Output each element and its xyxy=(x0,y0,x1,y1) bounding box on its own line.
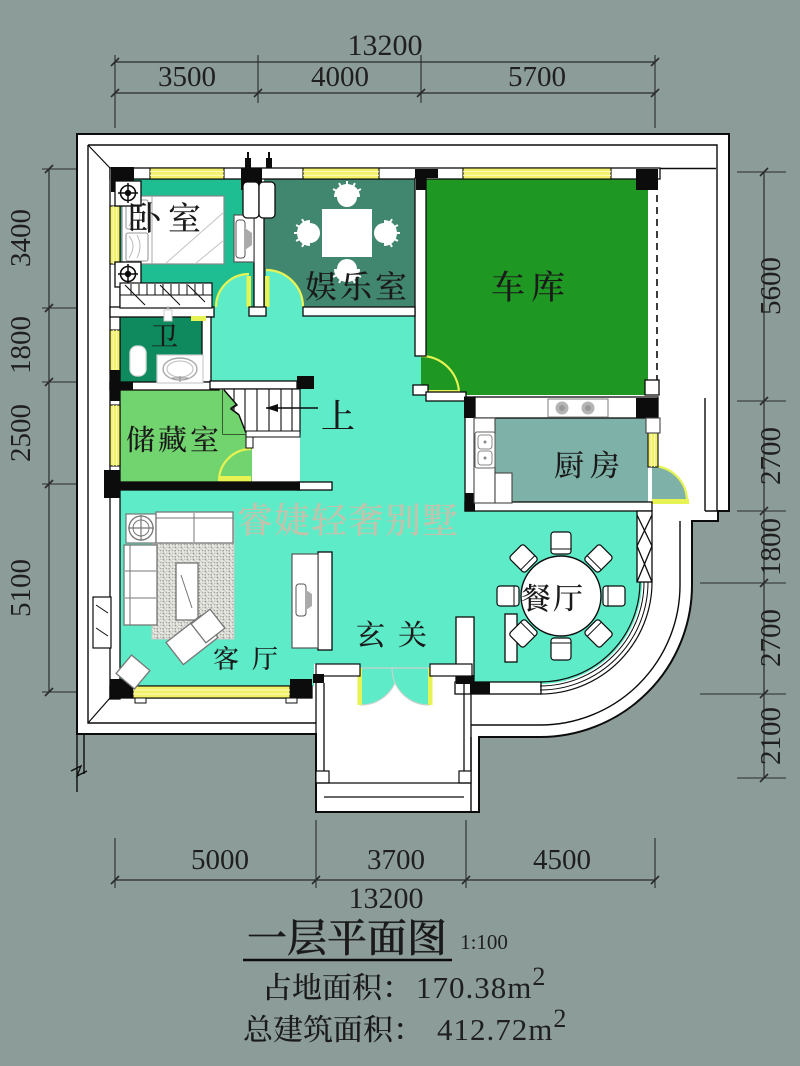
svg-text:5000: 5000 xyxy=(191,844,249,876)
svg-text:1:100: 1:100 xyxy=(460,930,508,954)
svg-text:1800: 1800 xyxy=(755,518,787,576)
svg-text:4000: 4000 xyxy=(311,61,369,93)
svg-text:5700: 5700 xyxy=(508,61,566,93)
svg-text:13200: 13200 xyxy=(349,882,424,915)
svg-text:2100: 2100 xyxy=(755,707,787,765)
svg-text:13200: 13200 xyxy=(348,29,423,62)
svg-text:2500: 2500 xyxy=(5,404,37,462)
svg-text:4500: 4500 xyxy=(533,844,591,876)
svg-text:2700: 2700 xyxy=(755,609,787,667)
svg-text:3700: 3700 xyxy=(367,844,425,876)
svg-text:2700: 2700 xyxy=(755,427,787,485)
svg-text:3400: 3400 xyxy=(5,209,37,267)
svg-text:5600: 5600 xyxy=(755,257,787,315)
svg-text:5100: 5100 xyxy=(5,559,37,617)
svg-text:1800: 1800 xyxy=(5,316,37,374)
svg-text:3500: 3500 xyxy=(158,61,216,93)
